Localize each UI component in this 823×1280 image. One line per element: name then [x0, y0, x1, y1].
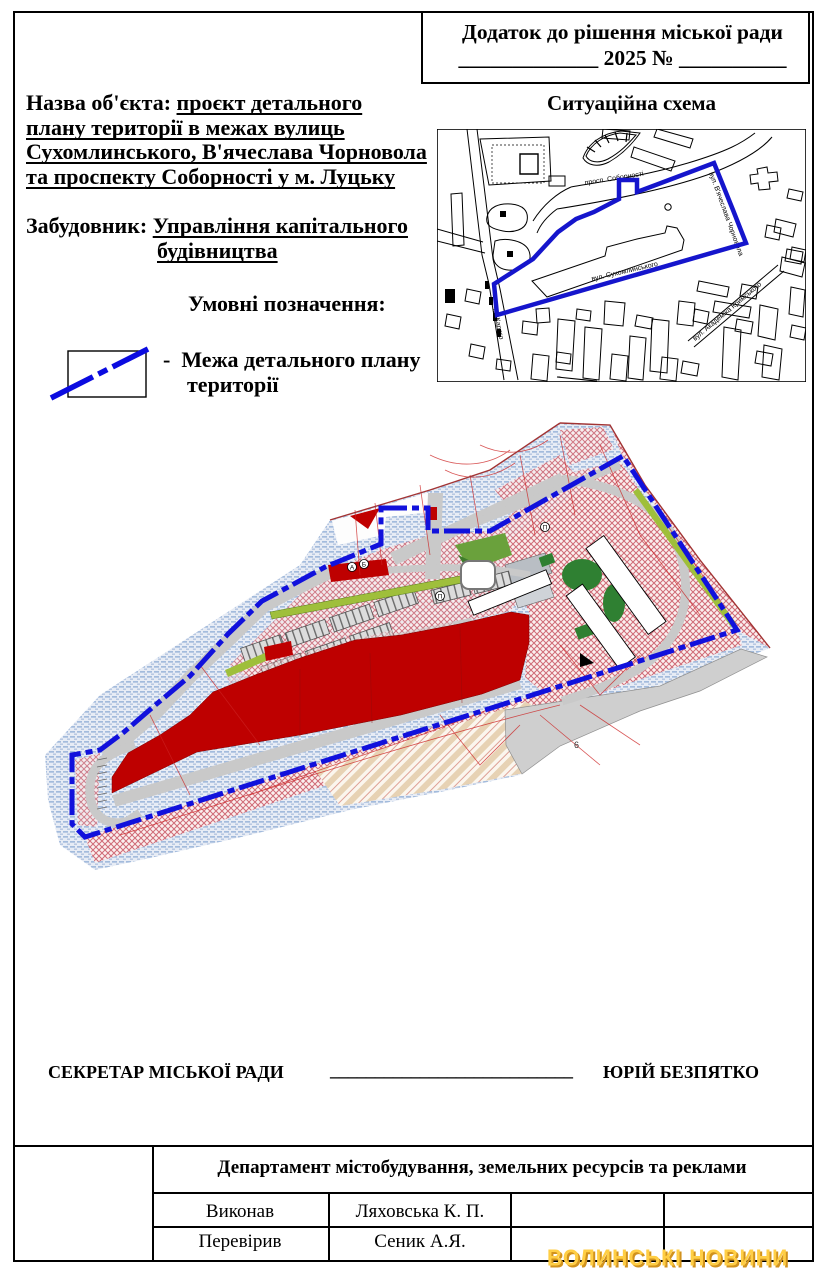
svg-text:П: П [438, 594, 443, 601]
svg-text:П: П [543, 525, 548, 532]
svg-text:А: А [350, 565, 355, 572]
svg-text:Б: Б [362, 562, 366, 569]
svg-text:6: 6 [574, 740, 579, 750]
